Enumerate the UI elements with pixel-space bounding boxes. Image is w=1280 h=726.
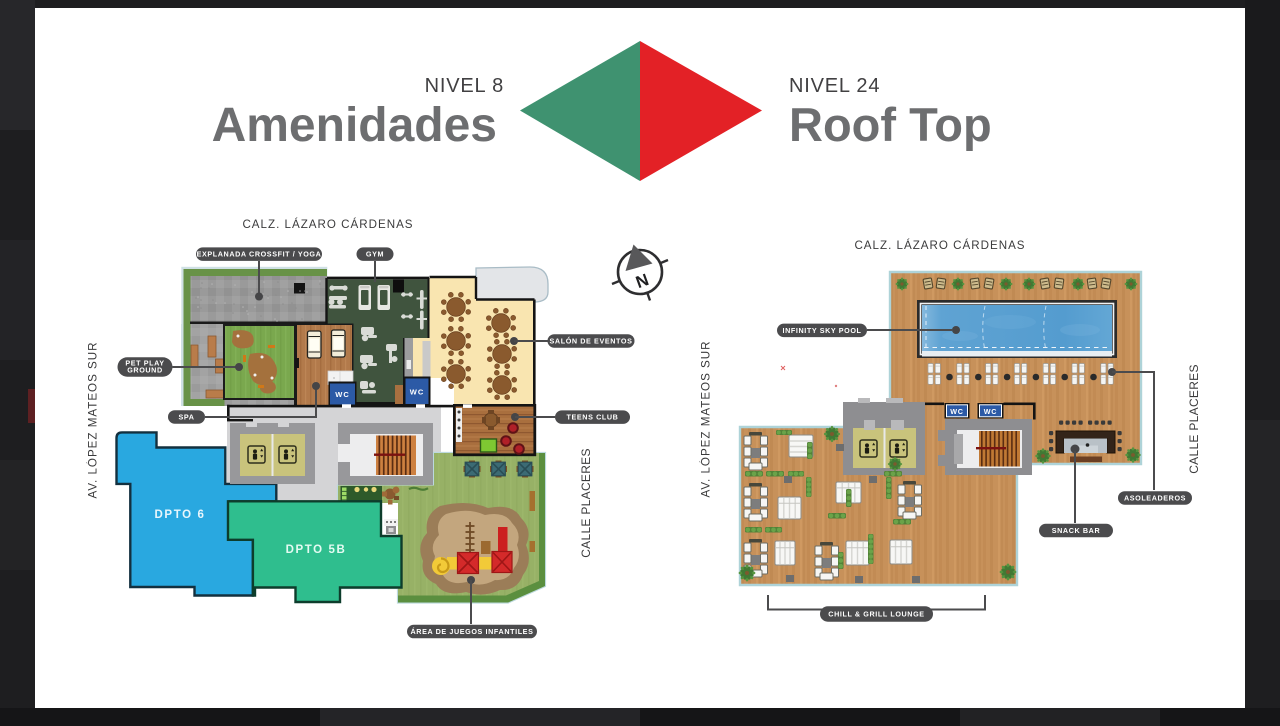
svg-text:DPTO 6: DPTO 6 [155,509,206,521]
svg-text:AV. LÓPEZ MATEOS SUR: AV. LÓPEZ MATEOS SUR [87,341,100,498]
svg-text:SNACK BAR: SNACK BAR [1052,526,1101,535]
svg-text:CALLE PLACERES: CALLE PLACERES [579,448,593,558]
svg-text:SPA: SPA [178,413,194,422]
svg-text:WC: WC [335,390,350,399]
svg-text:SALÓN DE EVENTOS: SALÓN DE EVENTOS [550,337,633,346]
svg-text:NIVEL 24: NIVEL 24 [789,75,880,97]
svg-text:GROUND: GROUND [127,366,163,375]
svg-text:TEENS CLUB: TEENS CLUB [567,413,619,422]
svg-text:WC: WC [984,407,998,416]
svg-text:Roof Top: Roof Top [789,98,992,151]
svg-text:Amenidades: Amenidades [212,99,497,152]
svg-text:WC: WC [410,388,425,397]
svg-text:WC: WC [950,407,964,416]
svg-text:CHILL & GRILL LOUNGE: CHILL & GRILL LOUNGE [828,610,924,619]
svg-text:CALLE PLACERES: CALLE PLACERES [1187,364,1201,474]
svg-text:EXPLANADA CROSSFIT / YOGA: EXPLANADA CROSSFIT / YOGA [197,250,322,259]
svg-text:ÁREA DE JUEGOS INFANTILES: ÁREA DE JUEGOS INFANTILES [411,627,534,636]
svg-text:GYM: GYM [366,250,384,259]
svg-text:CALZ. LÁZARO CÁRDENAS: CALZ. LÁZARO CÁRDENAS [854,239,1025,252]
svg-text:NIVEL 8: NIVEL 8 [425,75,504,97]
svg-text:AV. LÓPEZ MATEOS SUR: AV. LÓPEZ MATEOS SUR [700,340,713,497]
svg-text:CALZ. LÁZARO CÁRDENAS: CALZ. LÁZARO CÁRDENAS [242,218,413,231]
svg-text:INFINITY SKY POOL: INFINITY SKY POOL [782,326,861,335]
svg-text:DPTO 5B: DPTO 5B [286,544,347,556]
svg-text:ASOLEADEROS: ASOLEADEROS [1124,494,1186,503]
